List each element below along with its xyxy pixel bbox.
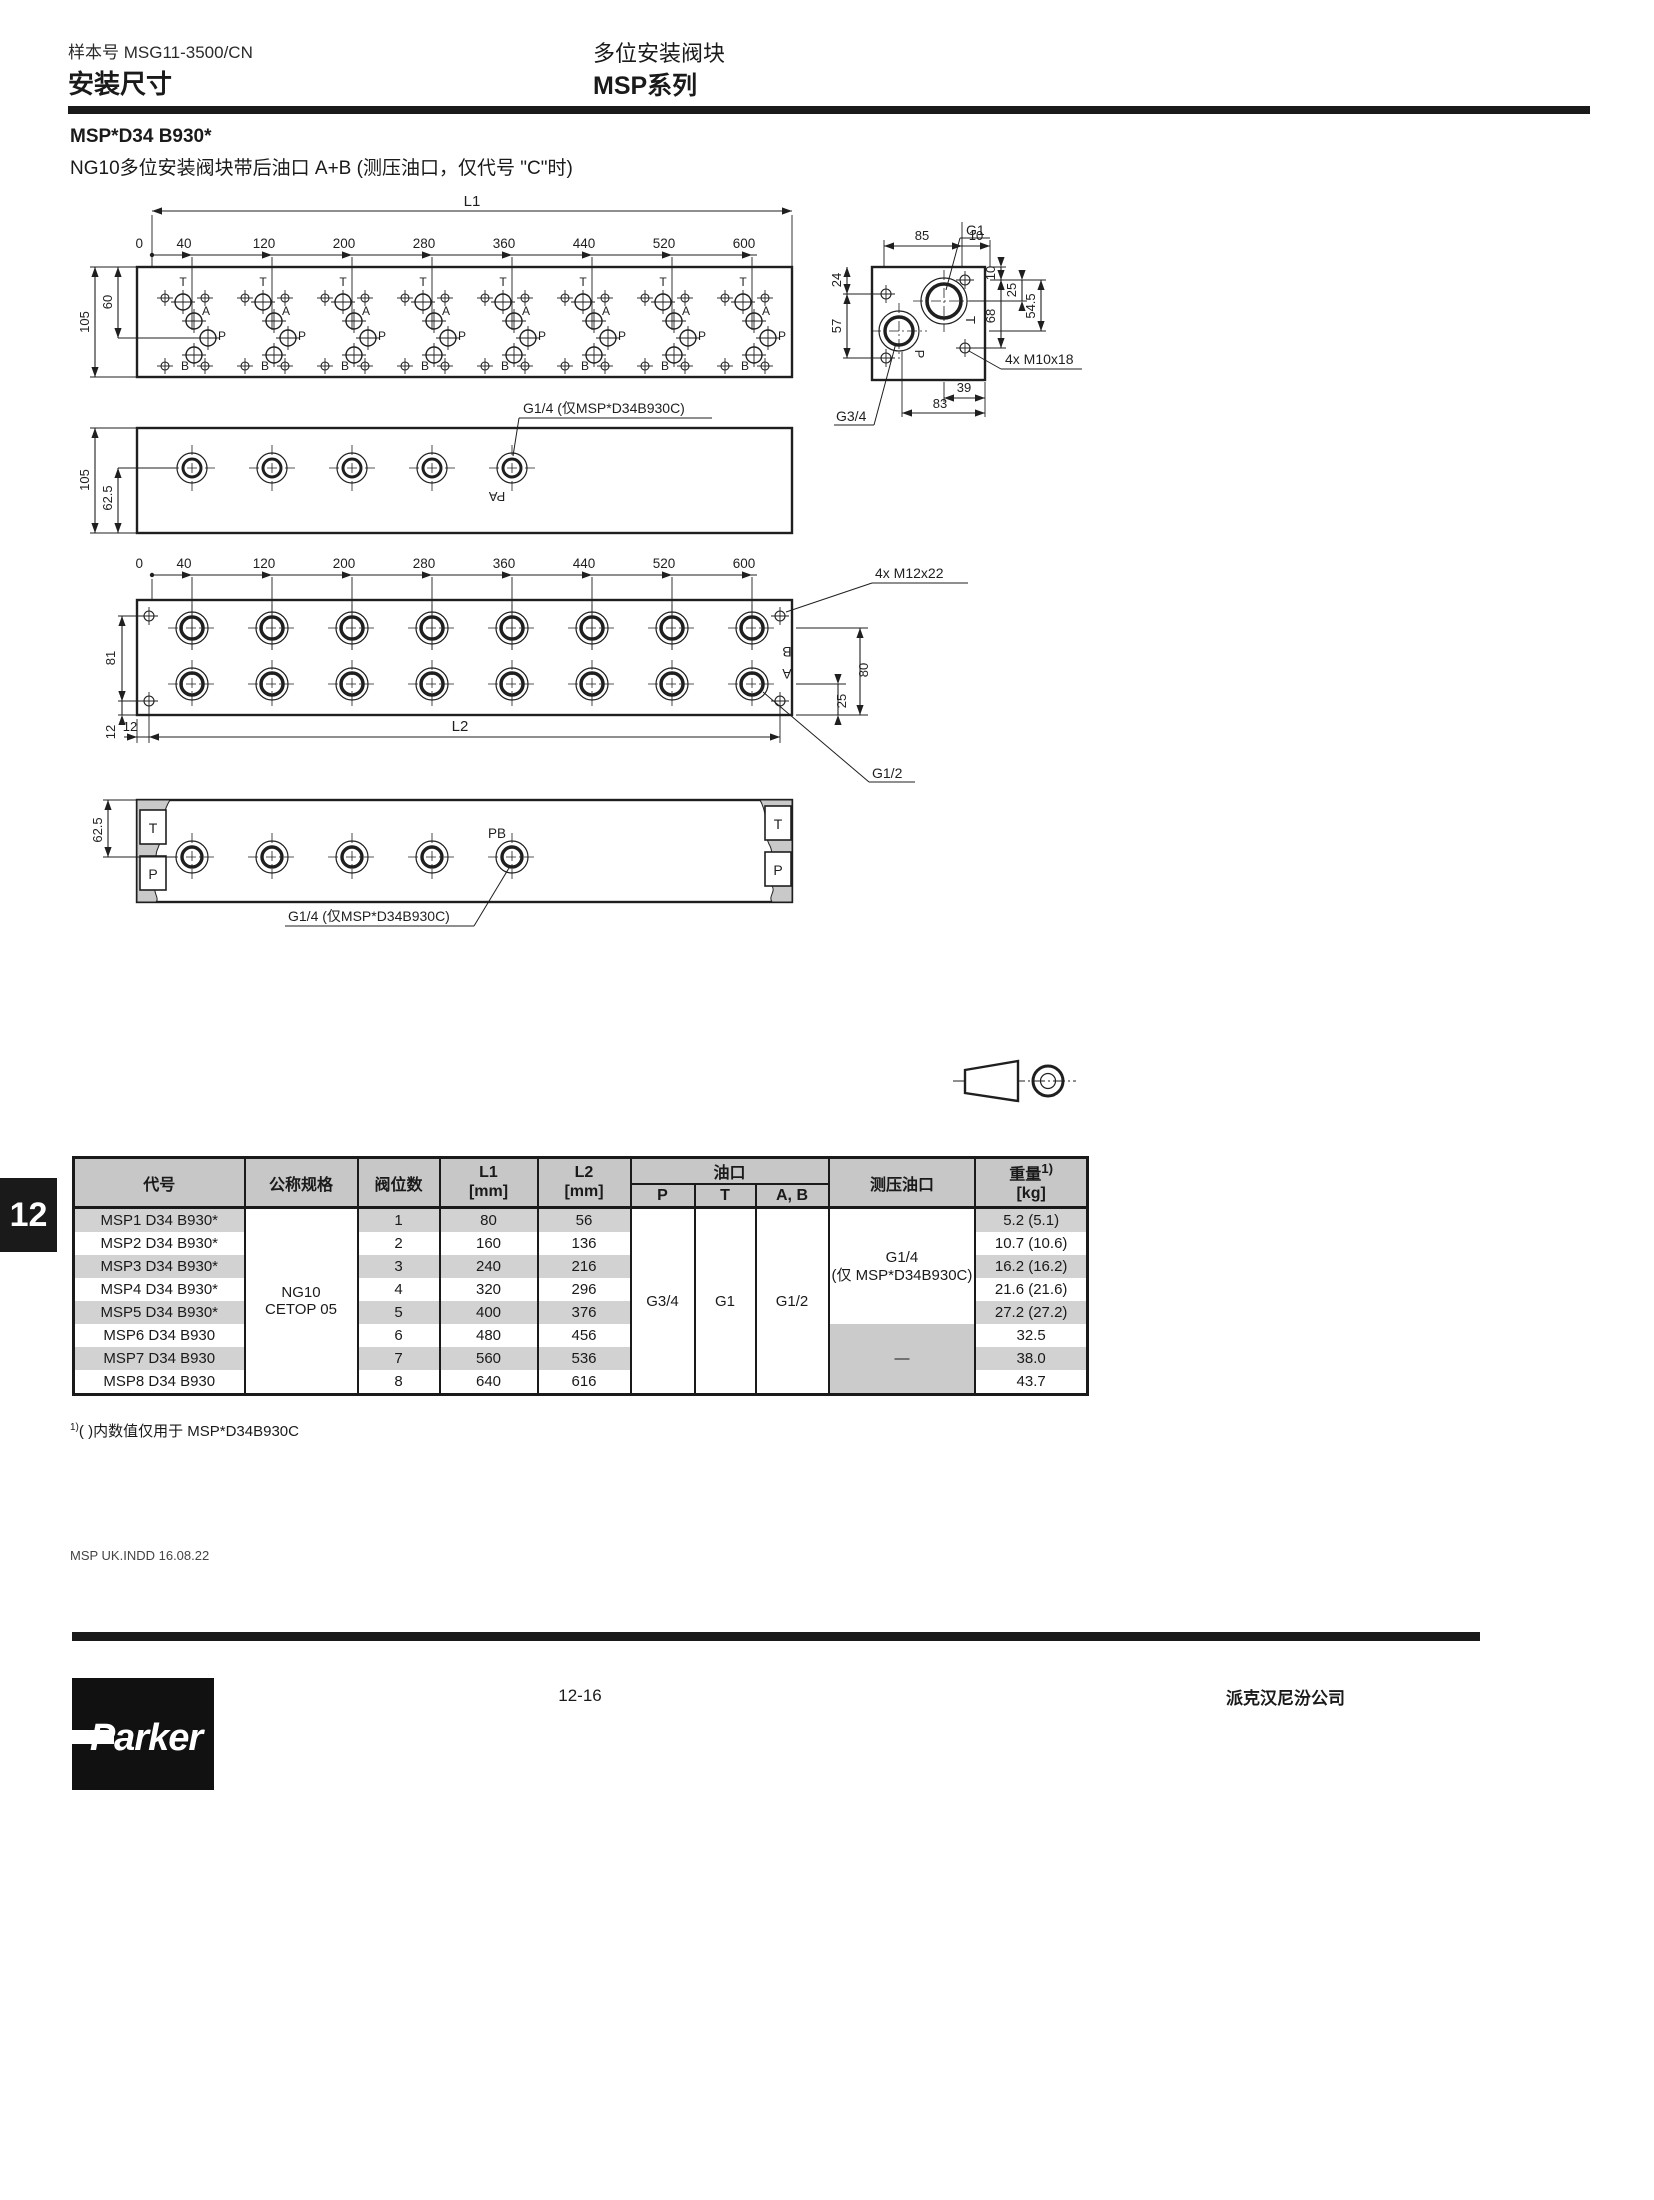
dim-arrow [742,251,752,258]
port-label: B [581,359,589,373]
doc-number: 样本号 MSG11-3500/CN [68,38,253,63]
col-header-l2: L2 [mm] [538,1158,631,1208]
port-label: B [661,359,669,373]
dim-arrow [834,715,841,725]
port-label: P [778,329,786,343]
nominal-size-line: NG10 [248,1284,355,1301]
block-outline [137,267,792,377]
port-label: T [179,275,187,289]
tick-label: 600 [733,556,756,571]
dim-arrow [843,294,850,304]
tick-label: 200 [333,556,356,571]
port-label: P [912,350,927,359]
cell-nominal-size: NG10CETOP 05 [245,1208,358,1395]
tick-label: 520 [653,556,676,571]
dim-arrow [262,571,272,578]
dim-label: 85 [915,228,929,243]
dim-arrow [149,733,159,740]
cell-weight: 38.0 [975,1347,1087,1370]
cell-weight: 5.2 (5.1) [975,1208,1087,1233]
dim-arrow [662,251,672,258]
cell-l2: 376 [538,1301,631,1324]
catalog-page: 样本号 MSG11-3500/CN 安装尺寸 多位安装阀块 MSP系列 MSP*… [0,0,1654,2200]
dim-label: 62.5 [100,485,115,510]
dim-arrow [104,800,111,810]
dim-label: 60 [100,295,115,309]
dim-arrow [582,571,592,578]
cell-l2: 136 [538,1232,631,1255]
cell-positions: 5 [358,1301,440,1324]
chapter-tab: 12 [0,1178,57,1252]
dim-label: 10 [983,266,998,280]
cell-weight: 32.5 [975,1324,1087,1347]
cell-weight: 27.2 (27.2) [975,1301,1087,1324]
cell-l1: 80 [440,1208,538,1233]
company-name: 派克汉尼汾公司 [1145,1684,1345,1709]
dim-label: 105 [77,469,92,491]
dim-arrow [91,367,98,377]
dim-origin-dot [150,253,154,257]
dim-arrow [91,428,98,438]
dim-arrow [1018,270,1025,280]
cell-port-p: G3/4 [631,1208,695,1395]
thread-label: G1/4 (仅MSP*D34B930C) [523,400,685,416]
dim-arrow [114,328,121,338]
footnote-marker: 1) [70,1422,79,1433]
dim-arrow [114,267,121,277]
dim-arrow [1037,321,1044,331]
dim-arrow [91,267,98,277]
drawing-line [874,343,896,425]
l1-dim-label: L1 [464,193,481,210]
tick-label: 280 [413,236,436,251]
port-label: T [963,316,978,324]
col-header-positions: 阀位数 [358,1158,440,1208]
l2-unit: [mm] [541,1183,628,1201]
cell-port-t: G1 [695,1208,756,1395]
cell-weight: 43.7 [975,1370,1087,1395]
dim-arrow [422,251,432,258]
port-label: T [659,275,667,289]
block-outline [137,800,792,902]
tick-label: 0 [135,236,143,251]
dim-arrow [997,257,1004,267]
dim-label: 105 [77,311,92,333]
dim-arrow [182,251,192,258]
cell-l2: 616 [538,1370,631,1395]
cell-model-code: MSP5 D34 B930* [74,1301,245,1324]
dim-arrow [582,251,592,258]
port-label: A [362,304,370,318]
page-title: 安装尺寸 [68,64,172,101]
cell-l1: 320 [440,1278,538,1301]
port-label: P [698,329,706,343]
port-label: B [341,359,349,373]
l2-label: L2 [541,1164,628,1182]
port-label: P [773,862,782,878]
dim-arrow [104,847,111,857]
drawing-line [474,868,509,926]
dim-arrow [262,251,272,258]
dim-arrow [114,468,121,478]
cell-l1: 400 [440,1301,538,1324]
dim-label: 12 [123,719,137,734]
port-label: T [339,275,347,289]
dim-arrow [782,207,792,214]
port-label: A [762,304,770,318]
dim-label: 81 [103,651,118,665]
port-label: A [202,304,210,318]
dim-label: 54.5 [1023,293,1038,318]
footnote-text: ( )内数值仅用于 MSP*D34B930C [79,1423,299,1440]
dim-arrow [975,409,985,416]
dim-label: 12 [103,725,118,739]
dim-arrow [342,571,352,578]
l1-unit: [mm] [443,1183,535,1201]
port-label: A [602,304,610,318]
dim-label: 57 [829,319,844,333]
port-label: P [218,329,226,343]
port-label: T [149,820,158,836]
cell-l1: 160 [440,1232,538,1255]
tick-label: 600 [733,236,756,251]
dim-arrow [422,571,432,578]
port-label: B [421,359,429,373]
cell-l2: 296 [538,1278,631,1301]
series-title: MSP系列 [593,66,697,102]
footnote: 1)( )内数值仅用于 MSP*D34B930C [70,1420,299,1441]
dim-arrow [856,705,863,715]
block-outline [137,600,792,715]
page-number: 12-16 [530,1686,630,1706]
cell-positions: 7 [358,1347,440,1370]
cell-gauge-none: — [829,1324,976,1395]
dim-arrow [118,691,125,701]
port-label: T [739,275,747,289]
col-header-gauge: 测压油口 [829,1158,976,1208]
tick-label: 520 [653,236,676,251]
port-label: A [682,304,690,318]
l2-dim-label: L2 [452,718,469,735]
nominal-size-line: CETOP 05 [248,1301,355,1318]
cell-positions: 6 [358,1324,440,1347]
tick-label: 0 [135,556,143,571]
cell-l2: 536 [538,1347,631,1370]
dim-label: 80 [856,663,871,677]
technical-drawing: L104012020028036044052060010560TAPBTAPBT… [60,180,1100,1140]
weight-unit: [kg] [978,1185,1084,1203]
thread-label: G1/2 [872,765,903,781]
cell-model-code: MSP7 D34 B930 [74,1347,245,1370]
col-header-l1: L1 [mm] [440,1158,538,1208]
dim-arrow [118,616,125,626]
port-label: A [442,304,450,318]
cell-l2: 456 [538,1324,631,1347]
dim-arrow [662,571,672,578]
dim-arrow [834,674,841,684]
port-label: A [782,666,792,682]
tick-label: 200 [333,236,356,251]
cell-l2: 56 [538,1208,631,1233]
thread-label: 4x M12x22 [875,565,944,581]
model-title: MSP*D34 B930* [70,126,212,148]
dim-label: 39 [957,380,971,395]
cell-weight: 16.2 (16.2) [975,1255,1087,1278]
dim-arrow [1037,280,1044,290]
l1-label: L1 [443,1164,535,1182]
cell-l1: 240 [440,1255,538,1278]
tick-label: 440 [573,556,596,571]
port-label: T [499,275,507,289]
dim-arrow [152,207,162,214]
tick-label: 120 [253,236,276,251]
dim-arrow [127,733,137,740]
dim-arrow [843,284,850,294]
parker-logo-text: Parker [90,1717,202,1760]
gauge-port-line: (仅 MSP*D34B930C) [832,1267,973,1284]
header-rule [68,106,1590,114]
port-label: B [181,359,189,373]
weight-label: 重量1) [978,1161,1084,1185]
dim-arrow [843,267,850,277]
dim-label: 24 [829,273,844,287]
dim-label: 62.5 [90,817,105,842]
cell-model-code: MSP6 D34 B930 [74,1324,245,1347]
dim-arrow [997,338,1004,348]
dim-arrow [975,394,985,401]
dim-arrow [770,733,780,740]
port-label: T [774,816,783,832]
tick-label: 440 [573,236,596,251]
port-label: PA [488,489,505,504]
port-label: B [741,359,749,373]
dim-arrow [884,242,894,249]
footer-rule [72,1632,1480,1641]
cell-model-code: MSP1 D34 B930* [74,1208,245,1233]
dim-arrow [502,251,512,258]
dim-label: 25 [1004,283,1019,297]
dim-label: 68 [983,309,998,323]
spec-row: MSP1 D34 B930*NG10CETOP 0518056G3/4G1G1/… [74,1208,1088,1233]
tick-label: 360 [493,236,516,251]
cell-positions: 1 [358,1208,440,1233]
cell-l1: 640 [440,1370,538,1395]
port-label: B [261,359,269,373]
thread-label: G1/4 (仅MSP*D34B930C) [288,908,450,924]
col-header-port-t: T [695,1184,756,1208]
spec-row: MSP6 D34 B9306480456—32.5 [74,1324,1088,1347]
port-label: P [378,329,386,343]
cell-l1: 480 [440,1324,538,1347]
thread-label: 4x M10x18 [1005,351,1074,367]
dim-label: 83 [933,396,947,411]
port-label: P [618,329,626,343]
model-subtitle: NG10多位安装阀块带后油口 A+B (测压油口，仅代号 "C"时) [70,153,573,180]
cell-model-code: MSP8 D34 B930 [74,1370,245,1395]
cell-l1: 560 [440,1347,538,1370]
dim-arrow [182,571,192,578]
col-header-ports: 油口 [631,1158,829,1185]
port-label: T [259,275,267,289]
port-label: B [782,644,791,660]
port-label: P [538,329,546,343]
col-header-port-p: P [631,1184,695,1208]
dim-arrow [114,523,121,533]
cell-positions: 2 [358,1232,440,1255]
tick-label: 40 [176,556,191,571]
thread-label: G3/4 [836,408,867,424]
dim-arrow [91,523,98,533]
dim-arrow [902,409,912,416]
tick-label: 40 [176,236,191,251]
port-label: P [458,329,466,343]
projection-cone [965,1061,1018,1101]
port-label: P [148,866,157,882]
cell-positions: 4 [358,1278,440,1301]
tick-label: 120 [253,556,276,571]
cell-positions: 8 [358,1370,440,1395]
cell-model-code: MSP3 D34 B930* [74,1255,245,1278]
drawing-line [786,583,872,612]
port-label: PB [488,826,506,841]
cell-model-code: MSP2 D34 B930* [74,1232,245,1255]
dim-arrow [856,628,863,638]
cell-weight: 10.7 (10.6) [975,1232,1087,1255]
dim-origin-dot [150,573,154,577]
dim-arrow [980,242,990,249]
tick-label: 360 [493,556,516,571]
cell-port-ab: G1/2 [756,1208,829,1395]
cell-model-code: MSP4 D34 B930* [74,1278,245,1301]
dim-arrow [502,571,512,578]
cell-positions: 3 [358,1255,440,1278]
product-title: 多位安装阀块 [593,36,725,68]
dim-arrow [742,571,752,578]
dim-arrow [342,251,352,258]
dim-label: 10 [969,228,983,243]
col-header-port-ab: A, B [756,1184,829,1208]
port-label: B [501,359,509,373]
spec-table: 代号 公称规格 阀位数 L1 [mm] L2 [mm] 油口 测压油口 重量1)… [72,1156,1089,1396]
port-label: T [579,275,587,289]
cell-l2: 216 [538,1255,631,1278]
dim-arrow [843,348,850,358]
dim-label: 25 [834,694,849,708]
port-label: T [419,275,427,289]
tick-label: 280 [413,556,436,571]
parker-logo: Parker [72,1678,214,1790]
block-outline [137,428,792,533]
gauge-port-line: G1/4 [832,1249,973,1266]
file-note: MSP UK.INDD 16.08.22 [70,1548,209,1563]
port-label: A [522,304,530,318]
drawing-line [513,418,519,456]
cell-gauge-port: G1/4(仅 MSP*D34B930C) [829,1208,976,1325]
dim-arrow [997,270,1004,280]
port-label: A [282,304,290,318]
cell-weight: 21.6 (21.6) [975,1278,1087,1301]
col-header-size: 公称规格 [245,1158,358,1208]
col-header-weight: 重量1) [kg] [975,1158,1087,1208]
col-header-code: 代号 [74,1158,245,1208]
port-label: P [298,329,306,343]
